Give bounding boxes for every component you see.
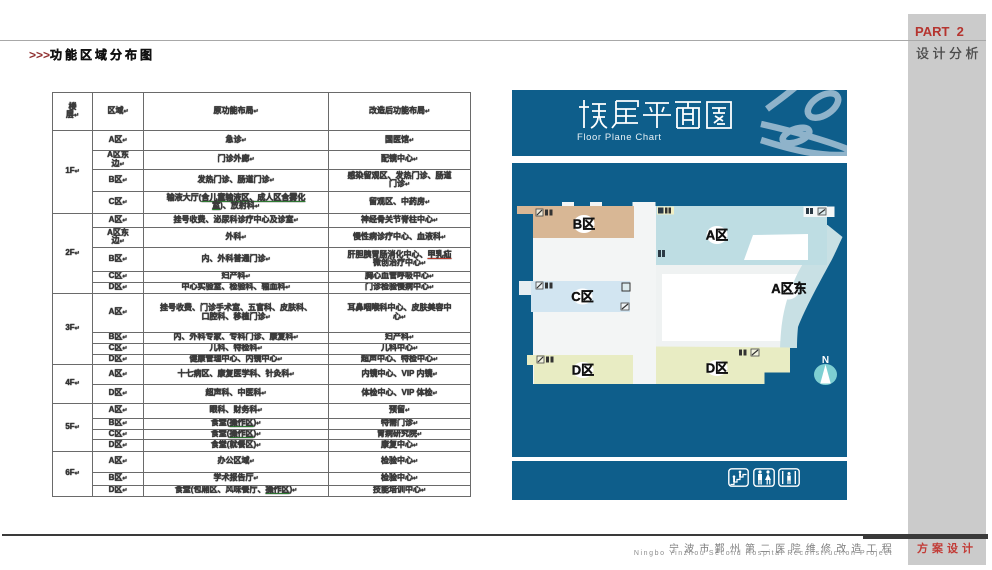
svg-text:B区: B区	[573, 217, 595, 232]
svg-text:D区: D区	[572, 363, 594, 378]
svg-text:A区: A区	[706, 228, 728, 243]
svg-text:A区东: A区东	[771, 281, 806, 296]
svg-text:D区: D区	[706, 361, 728, 376]
svg-text:C区: C区	[571, 289, 593, 304]
